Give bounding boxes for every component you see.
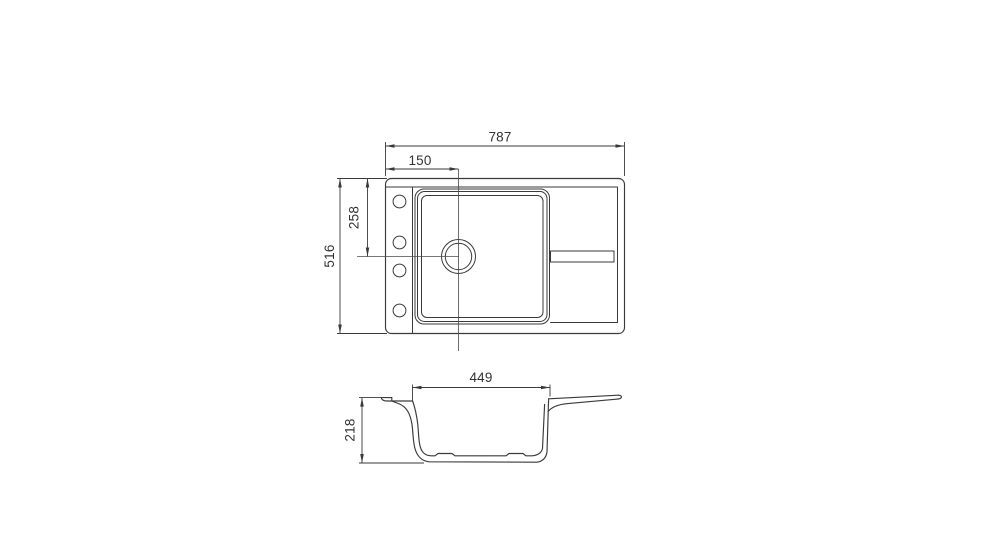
bowl-outer-profile: [400, 399, 549, 462]
dim-section-height: 218: [343, 398, 425, 463]
dim-drain-offset-left: 150: [386, 153, 459, 171]
arrowhead: [338, 325, 342, 334]
tap-hole-2: [393, 236, 406, 249]
arrowhead: [541, 386, 550, 390]
dim-label-bowl-width: 449: [469, 370, 492, 385]
arrowhead: [360, 398, 364, 407]
plan-view: 787 150 516 258: [322, 130, 625, 352]
dim-overall-depth: 516: [322, 179, 387, 334]
section-drainboard: [548, 395, 621, 411]
sink-dimension-drawing: 787 150 516 258: [0, 0, 1000, 550]
arrowhead: [386, 167, 395, 171]
technical-drawing-page: 787 150 516 258: [0, 0, 1000, 550]
arrowhead: [366, 179, 370, 188]
tap-hole-1: [393, 195, 406, 208]
tap-hole-3: [393, 264, 406, 277]
arrowhead: [616, 144, 625, 148]
dim-label-drain-offset-top: 258: [347, 206, 362, 229]
tap-hole-4: [393, 304, 406, 317]
drainboard-groove: [551, 251, 615, 262]
tap-holes: [393, 195, 406, 317]
dim-bowl-width: 449: [413, 370, 551, 401]
dim-label-drain-offset-left: 150: [408, 153, 431, 168]
arrowhead: [386, 144, 395, 148]
arrowhead: [366, 248, 370, 257]
dim-label-section-height: 218: [343, 418, 358, 441]
dim-label-overall-width: 787: [488, 130, 511, 145]
dim-drain-offset-top: 258: [347, 179, 370, 257]
arrowhead: [413, 386, 422, 390]
arrowhead: [450, 167, 459, 171]
bowl-inner-profile: [413, 401, 545, 456]
arrowhead: [338, 179, 342, 188]
section-left-lip: [381, 398, 413, 404]
section-view: 449 218: [343, 370, 622, 463]
arrowhead: [360, 454, 364, 463]
dim-label-overall-depth: 516: [322, 244, 337, 267]
